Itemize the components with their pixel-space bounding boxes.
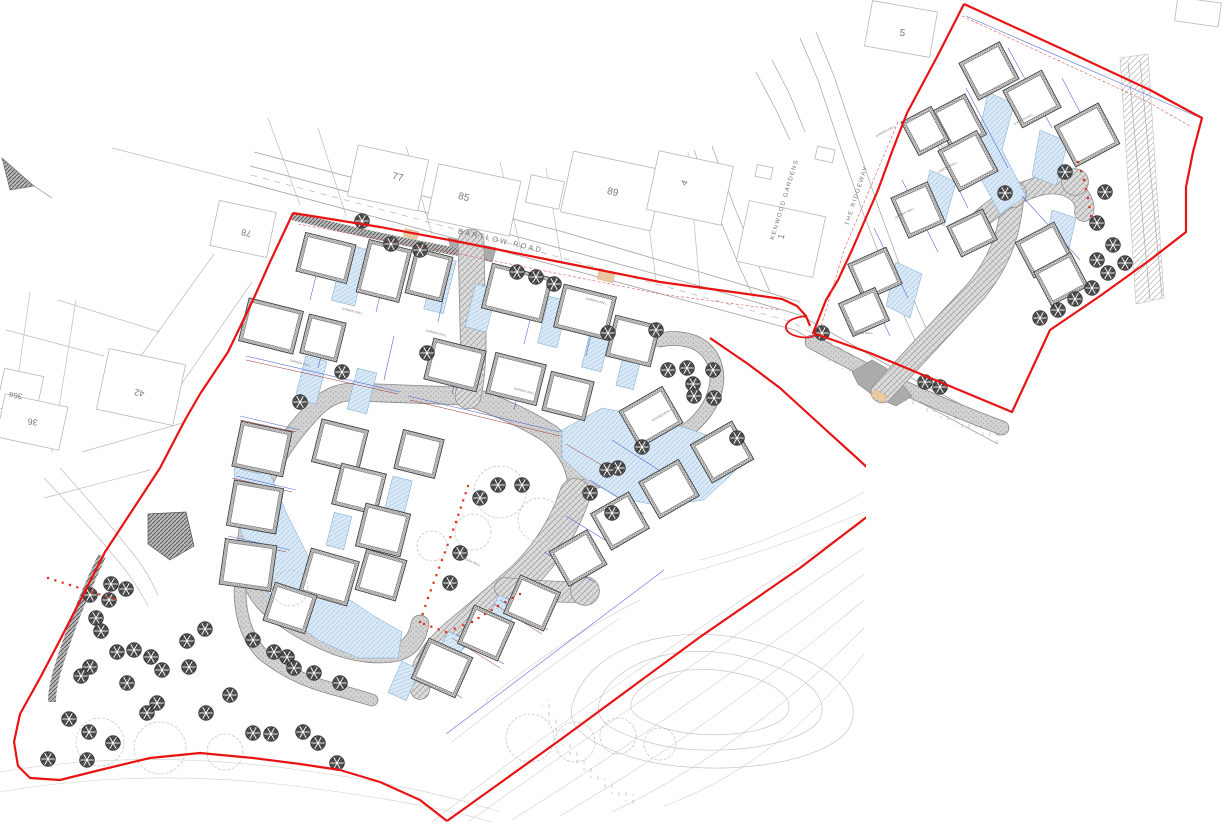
red-dot-marker <box>1087 197 1089 199</box>
clip-mask-layer <box>866 462 1224 824</box>
red-dot-marker <box>455 521 457 523</box>
red-dot-marker <box>54 579 56 581</box>
neighbor-building-outline <box>347 145 428 211</box>
tree-icon <box>94 624 109 639</box>
house-interior <box>595 497 645 546</box>
red-dot-marker <box>441 559 443 561</box>
road-casing-line <box>772 60 805 132</box>
parcel-boundary-line <box>138 254 214 360</box>
tree-icon <box>104 577 119 592</box>
neighbor-building-outline <box>647 151 734 225</box>
tree-icon <box>1106 238 1121 253</box>
plot-annotation: GARDEN WALL <box>425 328 447 337</box>
tree-icon <box>600 463 615 478</box>
house-footprint <box>542 371 594 420</box>
tree-icon <box>680 361 695 376</box>
tree-icon <box>287 661 302 676</box>
red-dot-marker <box>484 613 486 615</box>
tree-canopy-outline <box>134 722 186 774</box>
contour-line <box>512 574 864 820</box>
tree-icon <box>140 706 155 721</box>
tree-icon <box>223 688 238 703</box>
site-plan-svg: BARTLOW ROADKENWOOD GARDENSTHE RIDGEWAY7… <box>0 0 1224 824</box>
plot-annotation: GARDEN WALL <box>851 331 873 335</box>
red-dot-marker <box>471 621 473 623</box>
tree-icon <box>1090 253 1105 268</box>
tree-canopy-outline <box>417 531 447 561</box>
house-footprint <box>226 480 283 534</box>
red-dot-marker <box>113 598 115 600</box>
tree-icon <box>1085 281 1100 296</box>
tree-icon <box>155 663 170 678</box>
contour-line <box>432 522 864 822</box>
tree-icon <box>82 725 97 740</box>
tree-canopy-outline <box>506 714 554 762</box>
plot-boundary-line <box>384 336 394 380</box>
tree-icon <box>661 363 676 378</box>
tree-canopy-outline <box>207 734 243 770</box>
tree-icon <box>355 214 370 229</box>
tree-icon <box>198 622 213 637</box>
red-dot-marker <box>1080 170 1082 172</box>
neighbor-building-outline <box>525 175 564 209</box>
red-dot-marker <box>1088 206 1090 208</box>
red-dot-marker <box>1090 215 1092 217</box>
tree-icon <box>605 506 620 521</box>
red-dot-marker <box>457 514 459 516</box>
red-dot-marker <box>467 485 469 487</box>
red-dot-marker <box>430 589 432 591</box>
house-number-label: 36a <box>8 390 23 401</box>
plot-annotation: GARDEN WALL <box>875 124 896 138</box>
site-plan-canvas: BARTLOW ROADKENWOOD GARDENSTHE RIDGEWAY7… <box>0 0 1224 824</box>
red-dot-marker <box>62 582 64 584</box>
red-dot-marker <box>433 582 435 584</box>
parcel-boundary-line <box>112 148 252 184</box>
house-number-label: 42 <box>133 387 145 399</box>
red-dot-marker <box>462 624 464 626</box>
basin-contour-ring <box>631 669 789 734</box>
site-boundary-main <box>447 516 868 821</box>
tree-icon <box>89 611 104 626</box>
red-dot-marker <box>76 586 78 588</box>
tree-icon <box>1068 292 1083 307</box>
tree-icon <box>41 752 56 767</box>
red-dot-marker <box>1085 188 1087 190</box>
red-dot-marker <box>519 593 521 595</box>
tree-icon <box>127 643 142 658</box>
house-interior <box>230 484 279 530</box>
red-dot-marker <box>449 536 451 538</box>
red-dot-marker <box>490 609 492 611</box>
tree-icon <box>1098 185 1113 200</box>
driveway-strip <box>326 512 352 549</box>
tree-icon <box>1051 303 1066 318</box>
red-dot-marker <box>1083 179 1085 181</box>
parcel-boundary-line <box>44 470 150 498</box>
house-footprint <box>239 298 304 354</box>
neighbor-building-outline <box>815 146 835 162</box>
tree-icon <box>182 660 197 675</box>
red-dot-marker <box>47 577 49 579</box>
tree-icon <box>1090 216 1105 231</box>
red-dot-marker <box>422 613 424 615</box>
red-dot-marker <box>427 597 429 599</box>
tree-icon <box>246 726 261 741</box>
tree-canopy-outline <box>644 728 676 760</box>
tree-icon <box>120 676 135 691</box>
tree-icon <box>510 265 525 280</box>
red-dot-marker <box>477 617 479 619</box>
red-dot-marker <box>504 601 506 603</box>
utility-structure <box>148 512 194 560</box>
red-dot-marker <box>438 567 440 569</box>
tree-icon <box>311 736 326 751</box>
tree-icon <box>80 753 95 768</box>
red-dot-marker <box>447 544 449 546</box>
house-footprint <box>300 314 347 362</box>
red-dot-marker <box>1077 161 1079 163</box>
tree-icon <box>246 633 261 648</box>
tree-icon <box>687 389 702 404</box>
tree-icon <box>635 440 650 455</box>
tree-icon <box>473 491 488 506</box>
neighbor-building-outline <box>96 349 185 426</box>
red-dot-marker <box>438 628 440 630</box>
tree-icon <box>333 676 348 691</box>
tree-icon <box>583 486 598 501</box>
red-dot-marker <box>430 626 432 628</box>
house-footprint <box>219 539 277 592</box>
tree-icon <box>62 712 77 727</box>
plot-annotation: GARDEN WALL <box>460 555 482 568</box>
tree-icon <box>267 645 282 660</box>
red-dot-marker <box>462 499 464 501</box>
red-dot-marker <box>419 621 421 623</box>
tree-icon <box>180 634 195 649</box>
tree-icon <box>515 478 530 493</box>
house-interior <box>1059 108 1115 163</box>
red-dot-marker <box>465 492 467 494</box>
red-dot-marker <box>435 574 437 576</box>
tree-icon <box>307 666 322 681</box>
parcel-boundary-line <box>268 118 300 205</box>
red-dot-marker <box>98 593 100 595</box>
tree-icon <box>144 650 159 665</box>
red-dot-marker <box>423 623 425 625</box>
tree-icon <box>413 243 428 258</box>
tree-icon <box>1033 311 1048 326</box>
contour-line <box>700 492 864 560</box>
survey-arrow-tail <box>34 186 52 198</box>
tree-icon <box>199 706 214 721</box>
tree-icon <box>1058 165 1073 180</box>
red-dot-marker <box>454 628 456 630</box>
tree-icon <box>529 270 544 285</box>
tree-icon <box>443 576 458 591</box>
tree-icon <box>1118 256 1133 271</box>
red-dot-marker <box>106 596 108 598</box>
tree-icon <box>119 582 134 597</box>
driveway-strip <box>347 368 377 414</box>
house-interior <box>223 543 273 588</box>
red-dot-marker <box>497 605 499 607</box>
neighbor-building-outline <box>755 164 773 179</box>
tree-icon <box>384 237 399 252</box>
house-footprint <box>394 430 444 479</box>
red-dot-marker <box>444 551 446 553</box>
tree-icon <box>601 326 616 341</box>
tree-icon <box>335 365 350 380</box>
tree-icon <box>491 478 506 493</box>
survey-arrow-icon <box>2 158 34 190</box>
bank-tick-band <box>545 700 636 800</box>
tree-icon <box>649 323 664 338</box>
red-dot-marker <box>69 584 71 586</box>
tree-icon <box>420 346 435 361</box>
site-boundary-junction-island <box>786 316 816 338</box>
contour-line <box>660 512 864 580</box>
tree-icon <box>998 186 1013 201</box>
parcel-boundary-line <box>6 330 104 356</box>
red-dot-marker <box>424 605 426 607</box>
plot-annotation: GARDEN WALL <box>341 306 363 315</box>
neighbor-building-outline <box>1175 0 1222 27</box>
tree-icon <box>1101 266 1116 281</box>
house-footprint <box>311 419 368 473</box>
red-dot-marker <box>512 597 514 599</box>
house-footprint <box>606 315 661 367</box>
tree-icon <box>706 363 721 378</box>
tree-icon <box>547 277 562 292</box>
tree-icon <box>106 736 121 751</box>
tree-icon <box>110 645 125 660</box>
tree-icon <box>293 395 308 410</box>
house-footprint <box>838 287 889 336</box>
red-dot-marker <box>460 507 462 509</box>
red-dot-marker <box>452 529 454 531</box>
tree-canopy-outline <box>455 514 491 550</box>
red-dot-marker <box>91 591 93 593</box>
tree-icon <box>264 727 279 742</box>
road-casing-line <box>756 72 790 140</box>
tree-icon <box>296 725 311 740</box>
house-number-label: 36 <box>27 416 38 427</box>
tree-icon <box>707 391 722 406</box>
house-footprint <box>296 232 356 283</box>
tree-icon <box>730 431 745 446</box>
drawing-clip-rect <box>866 462 1224 824</box>
red-dot-marker <box>445 631 447 633</box>
tree-icon <box>74 669 89 684</box>
